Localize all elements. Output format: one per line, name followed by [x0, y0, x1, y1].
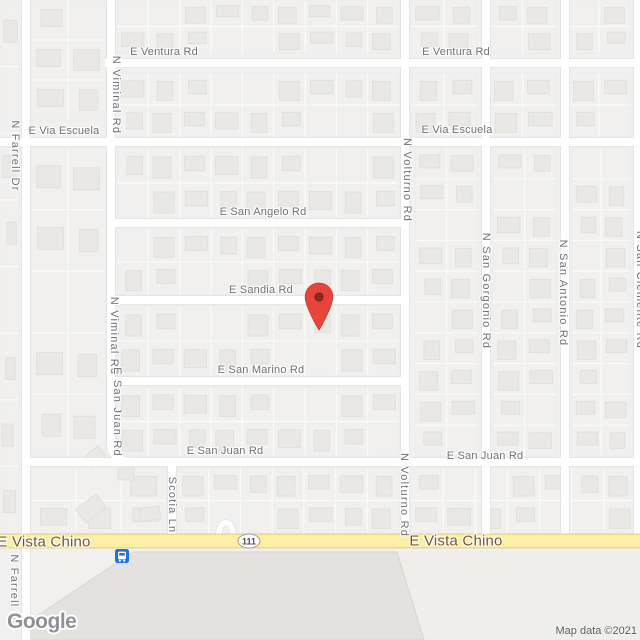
- map-pin[interactable]: [304, 281, 334, 333]
- google-logo[interactable]: Google: [7, 610, 76, 634]
- map-attribution: Map data ©2021: [556, 625, 638, 637]
- bus-stop-icon[interactable]: [115, 549, 129, 563]
- route-shield-111: 111: [238, 534, 261, 549]
- map-canvas[interactable]: E Ventura RdE Ventura RdE Via EscuelaE V…: [0, 0, 640, 640]
